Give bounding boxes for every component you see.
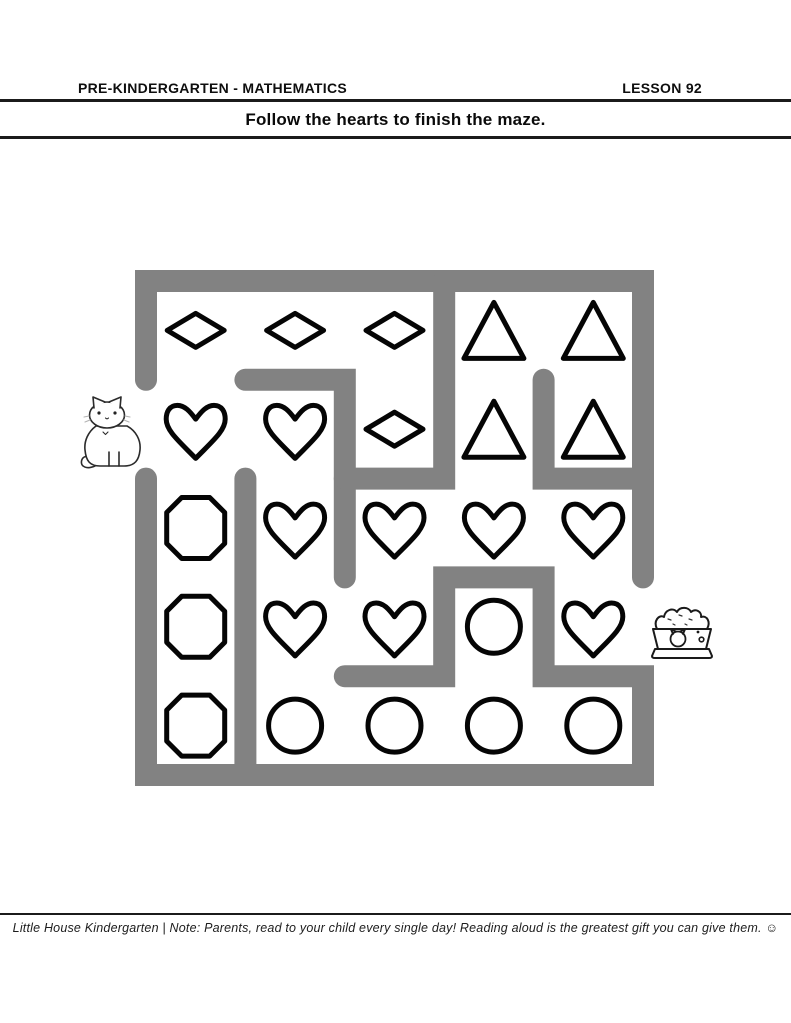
- circle-shape: [269, 699, 322, 752]
- food-bowl-icon: [652, 608, 712, 658]
- bowl-cat-logo: [671, 630, 686, 647]
- octagon-shape: [167, 596, 225, 657]
- bowl-dot: [697, 631, 700, 634]
- circle-shape: [567, 699, 620, 752]
- maze-wall: [345, 281, 444, 479]
- heart-shape: [266, 603, 325, 656]
- diamond-shape: [366, 412, 423, 446]
- bowl-base: [652, 649, 712, 658]
- maze-wall: [544, 380, 643, 479]
- diamond-shape: [366, 313, 423, 347]
- diamond-shape: [167, 313, 224, 347]
- circle-shape: [467, 600, 520, 653]
- heart-shape: [166, 405, 225, 458]
- heart-shape: [564, 504, 623, 557]
- heart-shape: [365, 603, 424, 656]
- octagon-shape: [167, 695, 225, 756]
- heart-shape: [266, 504, 325, 557]
- maze-graphic: [0, 0, 791, 1023]
- triangle-shape: [464, 401, 524, 457]
- triangle-shape: [464, 302, 524, 358]
- heart-shape: [564, 603, 623, 656]
- footer-note: Little House Kindergarten | Note: Parent…: [0, 921, 791, 935]
- kibble-mound: [656, 608, 709, 629]
- octagon-shape: [167, 498, 225, 559]
- heart-shape: [365, 504, 424, 557]
- footer-divider-line: [0, 913, 791, 915]
- triangle-shape: [563, 302, 623, 358]
- circle-shape: [368, 699, 421, 752]
- heart-shape: [266, 405, 325, 458]
- diamond-shape: [267, 313, 324, 347]
- cat-eye: [113, 411, 116, 414]
- worksheet-page: PRE-KINDERGARTEN - MATHEMATICS LESSON 92…: [0, 0, 791, 1023]
- cat-eye: [97, 411, 100, 414]
- cat-body: [85, 426, 140, 466]
- heart-shape: [464, 504, 523, 557]
- cat-icon: [81, 397, 140, 468]
- circle-shape: [467, 699, 520, 752]
- maze-wall: [245, 380, 344, 578]
- triangle-shape: [563, 401, 623, 457]
